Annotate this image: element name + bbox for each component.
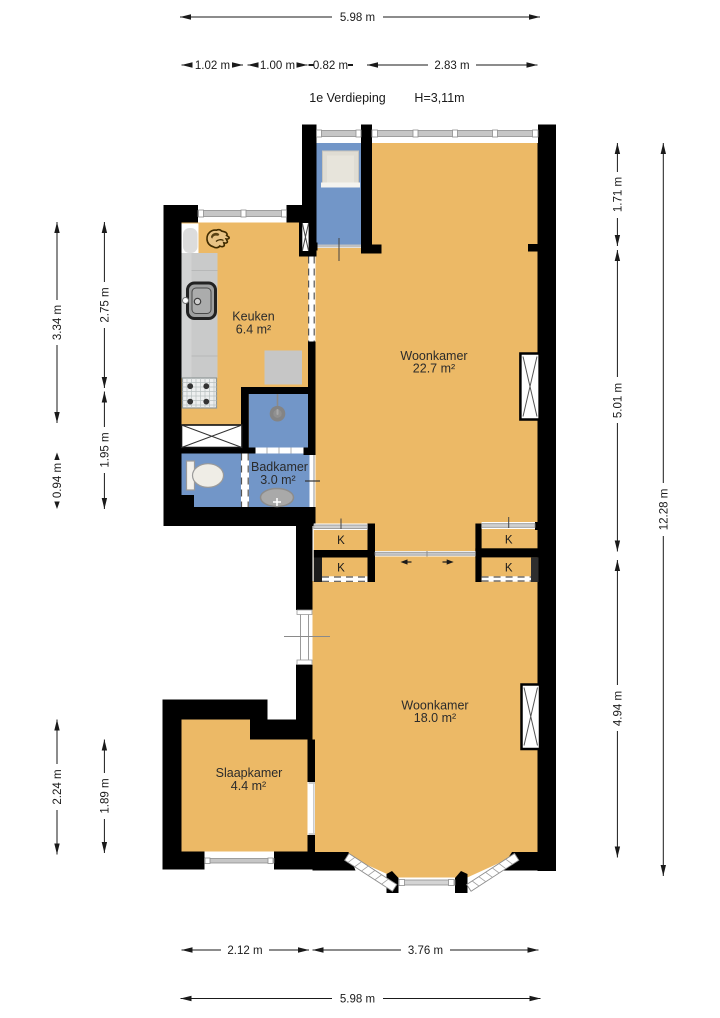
svg-text:K: K [337, 563, 345, 575]
svg-text:5.01 m: 5.01 m [612, 383, 624, 418]
svg-text:3.0 m²: 3.0 m² [260, 473, 295, 487]
svg-text:6.4 m²: 6.4 m² [236, 323, 271, 337]
svg-text:K: K [505, 563, 513, 575]
svg-text:4.94 m: 4.94 m [612, 691, 624, 726]
svg-text:2.83 m: 2.83 m [434, 60, 469, 72]
svg-text:1e Verdieping: 1e Verdieping [309, 91, 386, 105]
svg-text:2.12 m: 2.12 m [227, 945, 262, 957]
svg-text:1.02 m: 1.02 m [195, 60, 230, 72]
svg-text:3.34 m: 3.34 m [52, 305, 64, 340]
svg-text:K: K [337, 535, 345, 547]
svg-text:H=3,11m: H=3,11m [414, 91, 464, 105]
svg-text:5.98 m: 5.98 m [340, 994, 375, 1006]
svg-text:18.0 m²: 18.0 m² [414, 711, 456, 725]
svg-text:1.89 m: 1.89 m [99, 778, 111, 813]
svg-text:1.00 m: 1.00 m [260, 60, 295, 72]
svg-text:2.24 m: 2.24 m [52, 769, 64, 804]
svg-text:1.71 m: 1.71 m [612, 177, 624, 212]
svg-text:Badkamer: Badkamer [251, 460, 308, 474]
svg-text:Keuken: Keuken [232, 310, 274, 324]
svg-text:3.76 m: 3.76 m [408, 945, 443, 957]
svg-text:0.94 m: 0.94 m [52, 463, 64, 498]
svg-text:K: K [505, 535, 513, 547]
svg-text:0.82 m: 0.82 m [313, 60, 348, 72]
svg-text:5.98 m: 5.98 m [340, 12, 375, 24]
svg-text:1.95 m: 1.95 m [99, 432, 111, 467]
svg-text:22.7 m²: 22.7 m² [413, 362, 455, 376]
svg-text:Slaapkamer: Slaapkamer [216, 766, 283, 780]
svg-text:2.75 m: 2.75 m [99, 287, 111, 322]
svg-text:12.28 m: 12.28 m [658, 489, 670, 531]
svg-text:4.4 m²: 4.4 m² [231, 779, 266, 793]
